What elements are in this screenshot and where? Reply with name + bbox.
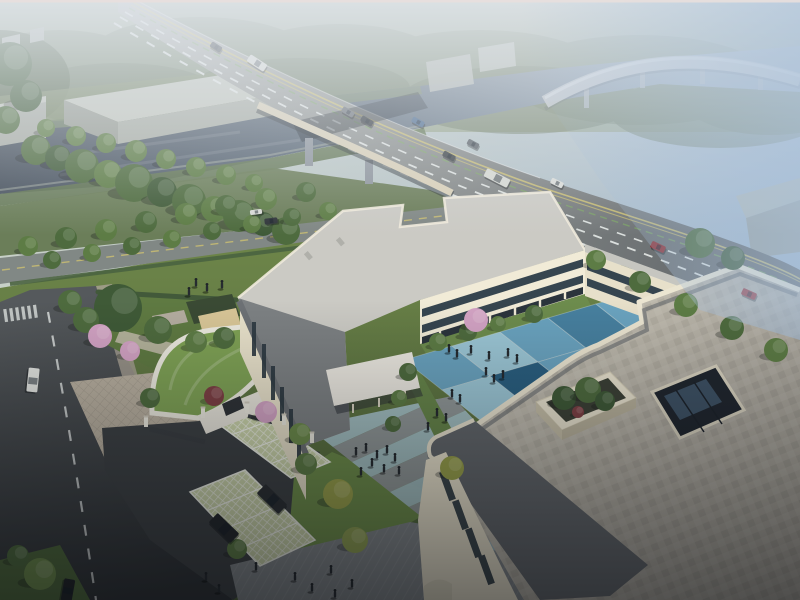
aerial-rendering (0, 0, 800, 600)
architectural-rendering-canvas: { "meta": { "title": "Aerial architectur… (0, 0, 800, 600)
top-border-line (0, 0, 800, 3)
vignette (0, 0, 800, 600)
